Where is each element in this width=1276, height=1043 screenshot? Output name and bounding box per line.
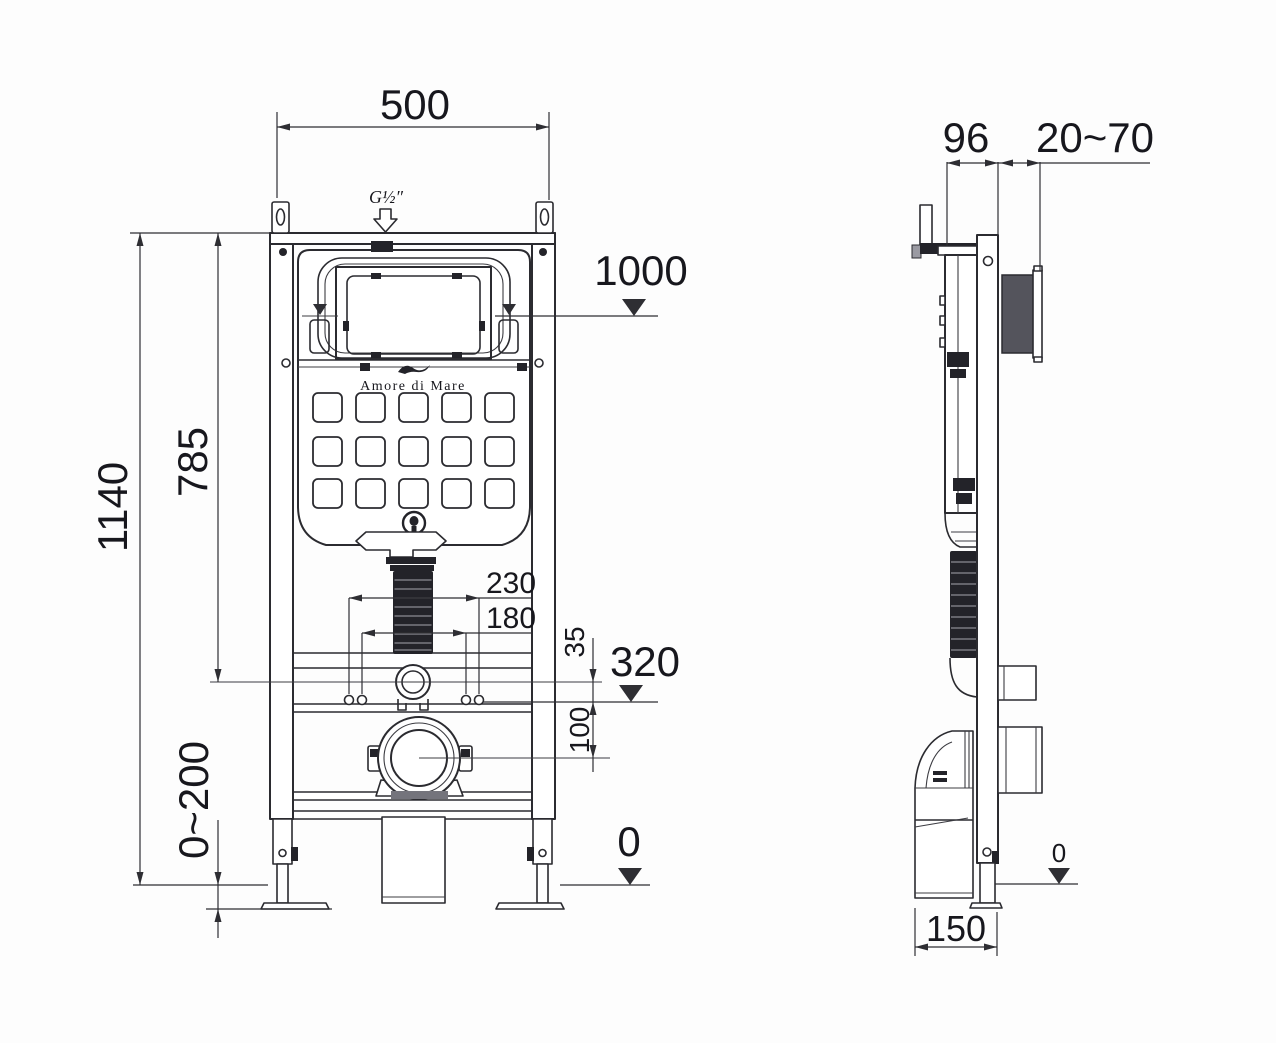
- drain-socket: [998, 727, 1042, 793]
- dim-height-785: 785: [169, 233, 222, 682]
- cistern-profile: [938, 246, 978, 547]
- side-view: 96 20~70 0 150: [912, 114, 1154, 956]
- level-triangle-icon: [619, 685, 643, 702]
- level-320-label: 320: [610, 638, 680, 685]
- cistern: Amore di Mare: [298, 250, 530, 545]
- mounting-tab-right: [536, 202, 553, 233]
- side-level-0-label: 0: [1052, 838, 1066, 868]
- dim-height-total-label: 1140: [89, 462, 136, 552]
- installation-drawing: Amore di Mare: [0, 0, 1276, 1043]
- level-triangle-icon: [618, 868, 642, 885]
- flush-plate-shaft: [1002, 266, 1042, 362]
- dim-inlet-offset-label: 35: [559, 626, 590, 657]
- dim-drain-offset-label: 100: [564, 707, 595, 754]
- flush-pipe-assembly: [356, 532, 446, 654]
- side-leg: [980, 863, 995, 903]
- corrugated-flush-pipe: [393, 571, 433, 654]
- level-triangle-icon: [622, 299, 646, 316]
- foot-plate-left: [261, 903, 329, 909]
- dim-fixing-outer-label: 230: [486, 567, 536, 600]
- thread-label: G½″: [369, 187, 403, 207]
- level-marker-0-front: 0: [617, 818, 642, 885]
- frame-rail-left: [270, 233, 293, 819]
- hollow-arrow-down-icon: [374, 209, 397, 232]
- dim-height-cistern-label: 785: [169, 427, 216, 497]
- dim-fixing-inner-label: 180: [486, 602, 536, 635]
- dim-width-500: 500: [277, 81, 549, 200]
- leg-right: [496, 819, 564, 909]
- emblem-badge: [403, 512, 425, 534]
- dim-width-label: 500: [380, 81, 450, 128]
- frame-top-rail: [270, 233, 555, 244]
- dim-base-150: 150: [915, 908, 997, 956]
- dim-leg-range-label: 0~200: [170, 741, 217, 859]
- foot-plate-right: [496, 903, 564, 909]
- level-marker-0-side: 0: [995, 838, 1078, 884]
- dim-plate-range-label: 20~70: [1036, 114, 1154, 161]
- mounting-tab-left: [272, 202, 289, 233]
- dim-base-depth-label: 150: [926, 908, 986, 949]
- front-view: Amore di Mare: [89, 81, 688, 938]
- outlet-box: [382, 817, 445, 903]
- brand-text: Amore di Mare: [360, 379, 466, 394]
- screw-left: [279, 248, 287, 256]
- drain-elbow: [915, 731, 973, 898]
- water-inlet-socket: [998, 666, 1036, 700]
- level-triangle-icon: [1048, 868, 1070, 884]
- frame-rail-right: [532, 233, 555, 819]
- dim-drain-offset-100: 100: [564, 707, 597, 758]
- dim-fixing-180: 180: [362, 602, 536, 694]
- leg-left: [261, 819, 329, 909]
- dim-leg-range: 0~200: [170, 741, 332, 938]
- level-0-label: 0: [617, 818, 640, 865]
- screw-right: [539, 248, 547, 256]
- dim-plate-range: 20~70: [1000, 114, 1154, 271]
- level-1000-label: 1000: [594, 247, 687, 294]
- inlet-port: [371, 241, 393, 252]
- dim-depth-label: 96: [943, 114, 990, 161]
